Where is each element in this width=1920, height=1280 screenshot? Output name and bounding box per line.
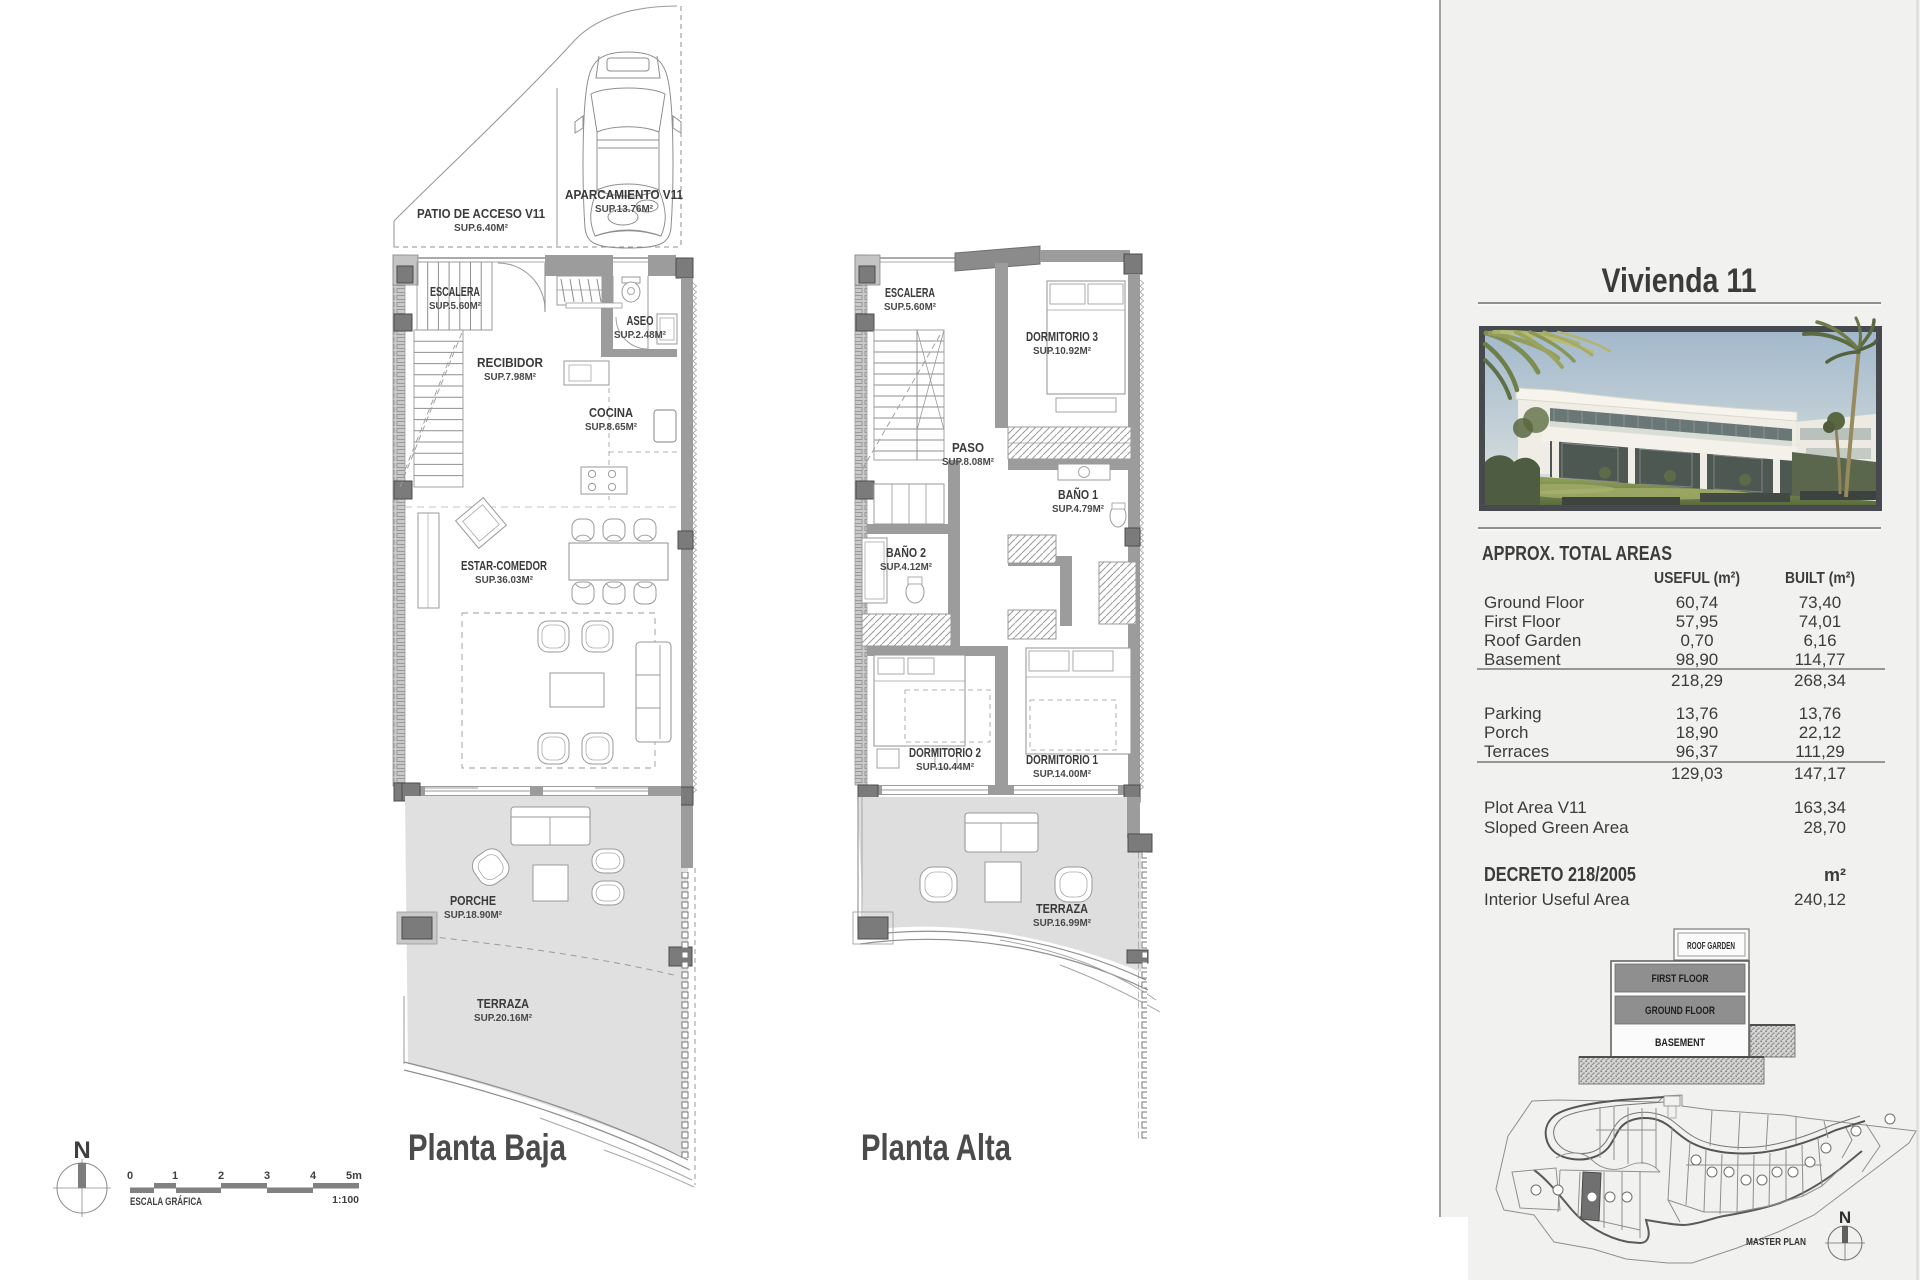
svg-text:74,01: 74,01 [1799, 612, 1842, 631]
svg-text:PASO: PASO [952, 440, 984, 455]
svg-text:N: N [1839, 1208, 1851, 1227]
svg-text:Ground Floor: Ground Floor [1484, 593, 1584, 612]
svg-text:1: 1 [172, 1170, 178, 1182]
svg-text:ESCALERA: ESCALERA [430, 284, 480, 299]
svg-text:ROOF GARDEN: ROOF GARDEN [1687, 941, 1735, 952]
svg-text:0,70: 0,70 [1680, 631, 1713, 650]
svg-text:DORMITORIO 2: DORMITORIO 2 [909, 745, 981, 760]
svg-text:96,37: 96,37 [1676, 742, 1719, 761]
svg-text:DORMITORIO 1: DORMITORIO 1 [1026, 752, 1098, 767]
svg-text:5m: 5m [346, 1170, 362, 1182]
svg-text:RECIBIDOR: RECIBIDOR [477, 355, 544, 370]
svg-text:SUP.20.16M²: SUP.20.16M² [474, 1012, 532, 1024]
svg-text:268,34: 268,34 [1794, 671, 1846, 690]
svg-text:111,29: 111,29 [1795, 742, 1844, 761]
svg-text:98,90: 98,90 [1676, 650, 1719, 669]
svg-text:SUP.4.79M²: SUP.4.79M² [1052, 503, 1104, 515]
svg-text:PORCHE: PORCHE [450, 893, 496, 908]
svg-text:22,12: 22,12 [1799, 723, 1842, 742]
svg-text:ESTAR-COMEDOR: ESTAR-COMEDOR [461, 558, 547, 573]
svg-text:DORMITORIO 3: DORMITORIO 3 [1026, 329, 1098, 344]
svg-text:SUP.7.98M²: SUP.7.98M² [484, 371, 536, 383]
svg-text:129,03: 129,03 [1671, 764, 1723, 783]
svg-text:m²: m² [1824, 865, 1846, 885]
svg-text:SUP.8.08M²: SUP.8.08M² [942, 456, 994, 468]
svg-text:2: 2 [218, 1170, 224, 1182]
svg-text:PATIO DE ACCESO V11: PATIO DE ACCESO V11 [417, 206, 545, 221]
svg-text:ESCALA GRÁFICA: ESCALA GRÁFICA [130, 1195, 202, 1208]
svg-text:18,90: 18,90 [1676, 723, 1719, 742]
svg-text:Interior Useful Area: Interior Useful Area [1484, 890, 1630, 909]
svg-text:TERRAZA: TERRAZA [477, 996, 530, 1011]
svg-text:Basement: Basement [1484, 650, 1561, 669]
svg-text:13,76: 13,76 [1799, 704, 1842, 723]
svg-text:28,70: 28,70 [1803, 818, 1846, 837]
svg-text:GROUND FLOOR: GROUND FLOOR [1645, 1005, 1715, 1017]
svg-text:4: 4 [310, 1170, 317, 1182]
svg-text:163,34: 163,34 [1794, 798, 1846, 817]
svg-text:DECRETO 218/2005: DECRETO 218/2005 [1484, 864, 1636, 886]
svg-text:SUP.16.99M²: SUP.16.99M² [1033, 917, 1091, 929]
svg-text:Terraces: Terraces [1484, 742, 1549, 761]
svg-text:SUP.5.60M²: SUP.5.60M² [884, 301, 936, 313]
svg-text:218,29: 218,29 [1671, 671, 1723, 690]
svg-text:0: 0 [127, 1170, 133, 1182]
svg-text:60,74: 60,74 [1676, 593, 1719, 612]
svg-text:SUP.2.48M²: SUP.2.48M² [614, 329, 666, 341]
svg-text:APPROX. TOTAL AREAS: APPROX. TOTAL AREAS [1482, 543, 1672, 565]
svg-text:Parking: Parking [1484, 704, 1542, 723]
svg-text:BAÑO 2: BAÑO 2 [886, 545, 926, 560]
svg-text:FIRST FLOOR: FIRST FLOOR [1652, 973, 1709, 985]
svg-text:First Floor: First Floor [1484, 612, 1561, 631]
svg-text:ASEO: ASEO [627, 313, 654, 328]
svg-text:SUP.36.03M²: SUP.36.03M² [475, 574, 533, 586]
svg-text:Plot Area V11: Plot Area V11 [1484, 798, 1587, 817]
svg-text:240,12: 240,12 [1794, 890, 1846, 909]
svg-text:1:100: 1:100 [332, 1194, 359, 1206]
svg-text:MASTER PLAN: MASTER PLAN [1746, 1236, 1806, 1248]
svg-text:USEFUL (m²): USEFUL (m²) [1654, 570, 1740, 587]
svg-text:Vivienda 11: Vivienda 11 [1602, 262, 1757, 300]
svg-text:SUP.6.40M²: SUP.6.40M² [454, 222, 508, 234]
svg-text:SUP.10.44M²: SUP.10.44M² [916, 761, 974, 773]
svg-text:APARCAMIENTO V11: APARCAMIENTO V11 [565, 187, 683, 202]
svg-text:SUP.4.12M²: SUP.4.12M² [880, 561, 932, 573]
svg-text:SUP.10.92M²: SUP.10.92M² [1033, 345, 1091, 357]
svg-text:73,40: 73,40 [1799, 593, 1842, 612]
svg-text:SUP.14.00M²: SUP.14.00M² [1033, 768, 1091, 780]
svg-text:3: 3 [264, 1170, 270, 1182]
svg-text:TERRAZA: TERRAZA [1036, 901, 1089, 916]
svg-text:Roof Garden: Roof Garden [1484, 631, 1581, 650]
svg-text:BUILT (m²): BUILT (m²) [1785, 570, 1855, 587]
svg-text:SUP.8.65M²: SUP.8.65M² [585, 421, 637, 433]
svg-text:ESCALERA: ESCALERA [885, 285, 935, 300]
svg-text:114,77: 114,77 [1795, 650, 1846, 669]
svg-text:SUP.18.90M²: SUP.18.90M² [444, 909, 502, 921]
svg-text:57,95: 57,95 [1676, 612, 1719, 631]
svg-text:13,76: 13,76 [1676, 704, 1719, 723]
svg-text:6,16: 6,16 [1803, 631, 1836, 650]
svg-text:147,17: 147,17 [1794, 764, 1846, 783]
svg-text:BAÑO 1: BAÑO 1 [1058, 487, 1098, 502]
svg-text:Planta Baja: Planta Baja [408, 1127, 566, 1168]
svg-text:Porch: Porch [1484, 723, 1528, 742]
svg-text:Sloped Green Area: Sloped Green Area [1484, 818, 1629, 837]
svg-text:SUP.13.76M²: SUP.13.76M² [595, 203, 653, 215]
svg-text:Planta Alta: Planta Alta [861, 1127, 1011, 1168]
svg-text:BASEMENT: BASEMENT [1655, 1037, 1705, 1049]
svg-text:SUP.5.60M²: SUP.5.60M² [429, 300, 481, 312]
svg-text:COCINA: COCINA [589, 405, 634, 420]
svg-text:N: N [73, 1137, 90, 1164]
